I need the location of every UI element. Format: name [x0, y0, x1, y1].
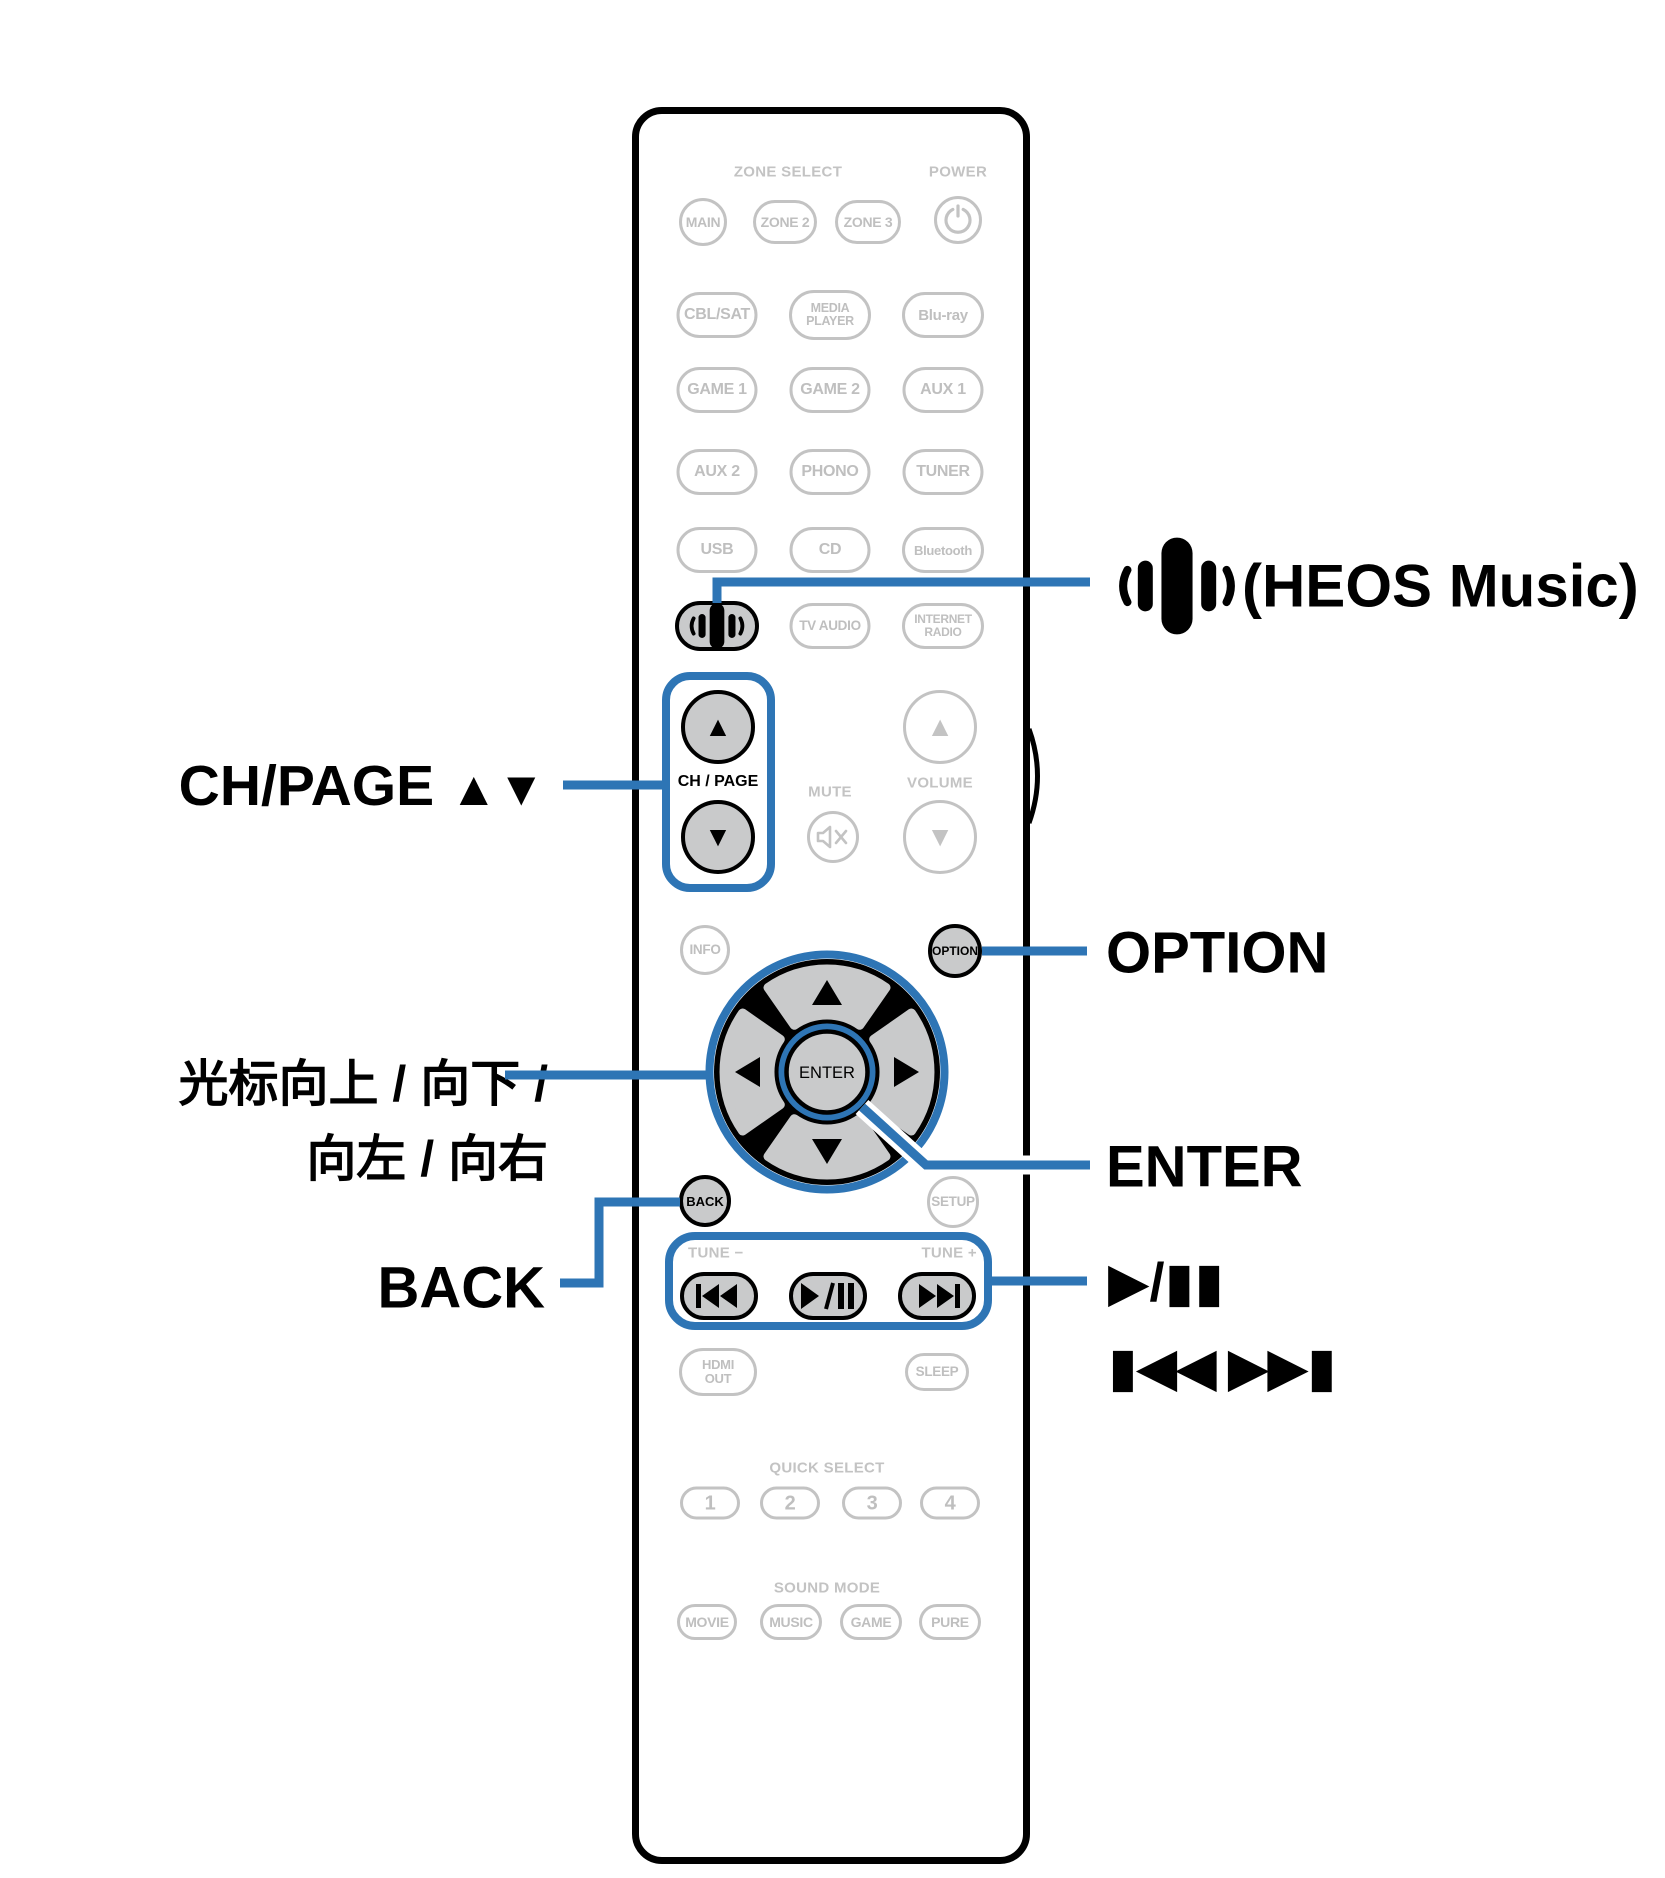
mute-icon [815, 823, 851, 851]
cbl-sat-button[interactable]: CBL/SAT [677, 292, 758, 338]
up-down-triangles-icon: ▲▼ [450, 763, 545, 816]
cursor-callout-line1: 光标向上 / 向下 / [179, 1044, 548, 1116]
media-player-label-1: MEDIA [811, 302, 850, 316]
sound-mode-music-button[interactable]: MUSIC [760, 1604, 822, 1640]
play-pause-icon [799, 1281, 857, 1311]
enter-button-label: ENTER [799, 1064, 855, 1082]
phono-button[interactable]: PHONO [790, 449, 871, 495]
back-callout: BACK [377, 1255, 545, 1322]
up-triangle-icon: ▲ [926, 713, 953, 741]
heos-icon [686, 601, 748, 651]
aux1-button[interactable]: AUX 1 [903, 367, 984, 413]
volume-up-button[interactable]: ▲ [903, 690, 977, 764]
aux2-button[interactable]: AUX 2 [677, 449, 758, 495]
zone2-button[interactable]: ZONE 2 [753, 200, 817, 244]
bluetooth-button[interactable]: Bluetooth [902, 527, 984, 573]
volume-label: VOLUME [907, 776, 973, 791]
power-header: POWER [929, 165, 987, 180]
skip-forward-icon [911, 1282, 963, 1310]
game1-button[interactable]: GAME 1 [677, 367, 758, 413]
setup-button[interactable]: SETUP [927, 1176, 979, 1228]
hdmi-out-label-2: OUT [705, 1372, 732, 1386]
channel-page-up-button[interactable]: ▲ [681, 690, 755, 764]
skip-forward-button[interactable] [898, 1272, 976, 1320]
mute-label: MUTE [808, 785, 852, 800]
blu-ray-button[interactable]: Blu-ray [902, 292, 984, 338]
quick-select-1-button[interactable]: 1 [680, 1487, 740, 1520]
ch-page-callout: CH/PAGE ▲▼ [179, 753, 545, 819]
quick-select-3-button[interactable]: 3 [842, 1487, 902, 1520]
cursor-callout-line2: 向左 / 向右 [306, 1119, 548, 1191]
zone3-button[interactable]: ZONE 3 [835, 200, 901, 244]
down-triangle-icon: ▼ [704, 823, 732, 851]
enter-callout: ENTER [1106, 1134, 1303, 1201]
channel-page-down-button[interactable]: ▼ [681, 800, 755, 874]
play-pause-button[interactable] [789, 1272, 867, 1320]
remote-side-bump [1029, 729, 1038, 823]
quick-select-2-button[interactable]: 2 [760, 1487, 820, 1520]
main-zone-button[interactable]: MAIN [679, 198, 727, 246]
quick-select-header: QUICK SELECT [769, 1461, 884, 1476]
tune-plus-label: TUNE + [921, 1246, 977, 1261]
internet-radio-label-2: RADIO [924, 626, 961, 639]
game2-button[interactable]: GAME 2 [790, 367, 871, 413]
power-button[interactable] [934, 196, 982, 244]
play-pause-callout: ▶/▮▮ [1108, 1251, 1224, 1314]
volume-down-button[interactable]: ▼ [903, 800, 977, 874]
sleep-button[interactable]: SLEEP [905, 1353, 969, 1391]
cd-button[interactable]: CD [790, 527, 871, 573]
internet-radio-button[interactable]: INTERNET RADIO [902, 603, 984, 649]
hdmi-out-label-1: HDMI [702, 1358, 734, 1372]
usb-button[interactable]: USB [677, 527, 758, 573]
heos-music-icon [1112, 533, 1242, 639]
heos-music-button[interactable] [675, 601, 759, 651]
power-icon [942, 204, 974, 236]
tv-audio-button[interactable]: TV AUDIO [790, 603, 871, 649]
up-triangle-icon: ▲ [704, 713, 732, 741]
quick-select-4-button[interactable]: 4 [920, 1487, 980, 1520]
heos-music-callout-label: (HEOS Music) [1242, 553, 1639, 620]
skip-back-icon [693, 1282, 745, 1310]
sound-mode-movie-button[interactable]: MOVIE [677, 1604, 737, 1640]
option-callout: OPTION [1106, 920, 1328, 987]
sound-mode-header: SOUND MODE [774, 1581, 880, 1596]
heos-music-callout: (HEOS Music) [1112, 533, 1639, 639]
back-button[interactable]: BACK [679, 1175, 731, 1227]
tune-minus-label: TUNE − [688, 1246, 744, 1261]
sound-mode-pure-button[interactable]: PURE [919, 1604, 981, 1640]
zone-select-header: ZONE SELECT [734, 165, 842, 180]
skip-back-button[interactable] [680, 1272, 758, 1320]
media-player-button[interactable]: MEDIA PLAYER [789, 290, 871, 340]
remote-control-diagram: ZONE SELECT POWER MAIN ZONE 2 ZONE 3 CBL… [0, 0, 1665, 1878]
ch-page-callout-label: CH/PAGE [179, 754, 434, 818]
hdmi-out-button[interactable]: HDMI OUT [679, 1348, 757, 1396]
mute-button[interactable] [807, 811, 859, 863]
ch-page-label: CH / PAGE [678, 773, 759, 791]
sound-mode-game-button[interactable]: GAME [840, 1604, 902, 1640]
media-player-label-2: PLAYER [806, 315, 854, 329]
skip-callout: ▮◀◀ ▶▶▮ [1108, 1336, 1335, 1399]
down-triangle-icon: ▼ [926, 823, 953, 851]
cursor-pad[interactable]: ENTER [692, 937, 962, 1207]
tuner-button[interactable]: TUNER [903, 449, 984, 495]
